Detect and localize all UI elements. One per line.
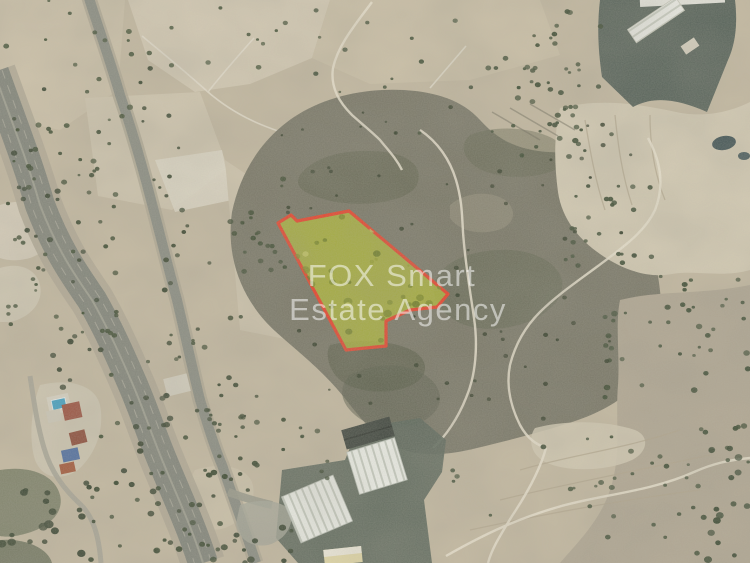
watermark-line2: Estate Agency bbox=[289, 292, 507, 327]
watermark: FOX Smart Estate Agency bbox=[289, 258, 507, 327]
satellite-map-image: FOX Smart Estate Agency bbox=[0, 0, 750, 563]
watermark-line1: FOX Smart bbox=[308, 258, 477, 293]
aerial-photo-canvas: FOX Smart Estate Agency bbox=[0, 0, 750, 563]
